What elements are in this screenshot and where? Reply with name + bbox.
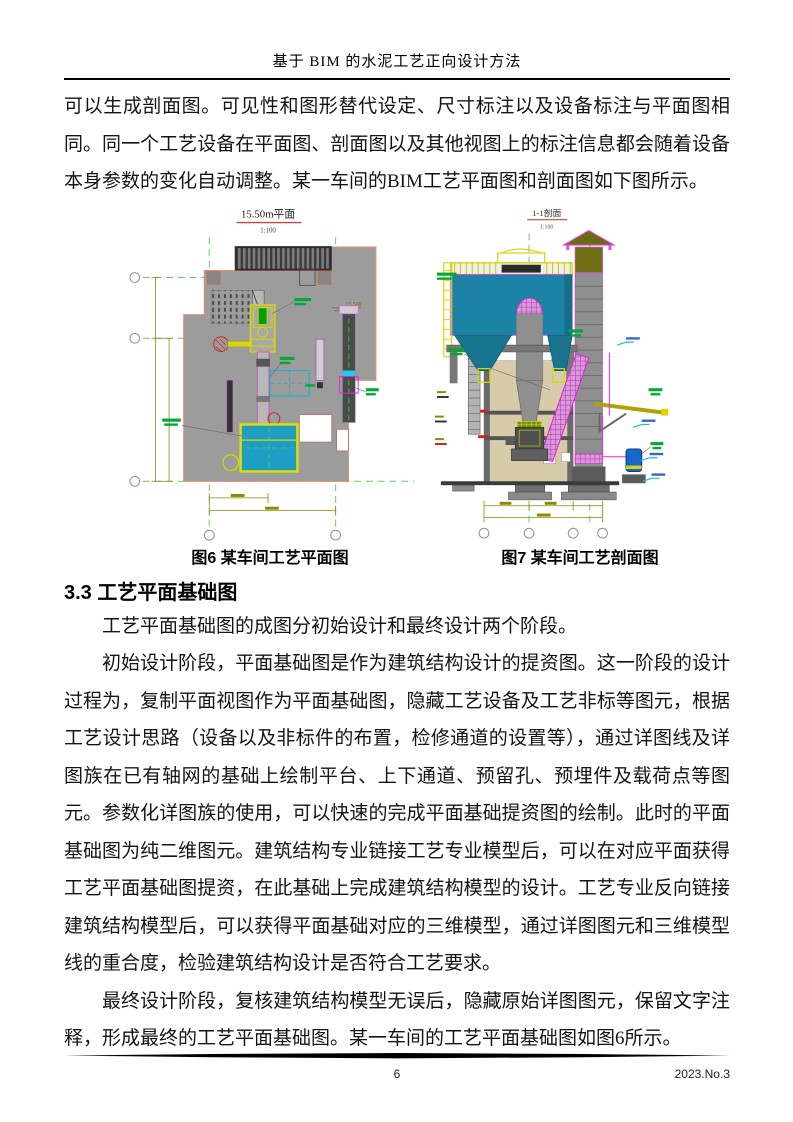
plan-opening [299, 414, 331, 441]
page-footer: 6 2023.No.3 [64, 1046, 730, 1085]
plan-corner-block [318, 271, 331, 284]
plan-stair-zone [211, 290, 252, 323]
plan-view-drawing: 15.50m平面 1:100 [120, 204, 420, 542]
figure-7: 1-1剖面 1:100 [430, 204, 730, 571]
page-header-title: 基于 BIM 的水泥工艺正向设计方法 [64, 0, 730, 71]
paragraph-2: 工艺平面基础图的成图分初始设计和最终设计两个阶段。 [64, 608, 730, 646]
plan-opening [337, 429, 349, 451]
footer-issue: 2023.No.3 [675, 1067, 730, 1081]
section-inner-cylinder [516, 298, 542, 380]
footer-page-number: 6 [64, 1067, 730, 1081]
section-dimensions [484, 500, 603, 522]
figures-row: 15.50m平面 1:100 [64, 204, 730, 571]
plan-corner-block [207, 271, 220, 284]
footer-rule [64, 1053, 730, 1059]
plan-scale: 1:100 [260, 227, 276, 234]
header-rule [64, 78, 730, 80]
section-scale: 1:100 [540, 224, 553, 230]
plan-hoist-equipment [250, 304, 274, 351]
plan-title: 15.50m平面 [241, 208, 295, 220]
paragraph-1: 可以生成剖面图。可见性和图形替代设定、尺寸标注以及设备标注与平面图相同。同一个工… [64, 88, 730, 201]
plan-dark-column [227, 380, 233, 432]
plan-right-duct [340, 305, 359, 422]
plan-louvre-band [236, 247, 331, 270]
figure-7-caption: 图7 某车间工艺剖面图 [430, 547, 730, 571]
section-conveyor [595, 403, 668, 430]
section-heading-3-3: 3.3 工艺平面基础图 [64, 578, 730, 608]
section-foundations [441, 481, 619, 500]
section-grid-bubbles [479, 528, 607, 538]
section-vessel [622, 448, 646, 482]
section-title: 1-1剖面 [532, 206, 562, 217]
figure-6: 15.50m平面 1:100 [120, 204, 420, 571]
section-left-levels [435, 391, 449, 445]
paper-page: 基于 BIM 的水泥工艺正向设计方法 可以生成剖面图。可见性和图形替代设定、尺寸… [0, 0, 793, 1122]
figure-6-caption: 图6 某车间工艺平面图 [120, 547, 420, 571]
paragraph-3: 初始设计阶段，平面基础图是作为建筑结构设计的提资图。这一阶段的设计过程为，复制平… [64, 645, 730, 983]
section-view-drawing: 1-1剖面 1:100 [430, 204, 730, 542]
